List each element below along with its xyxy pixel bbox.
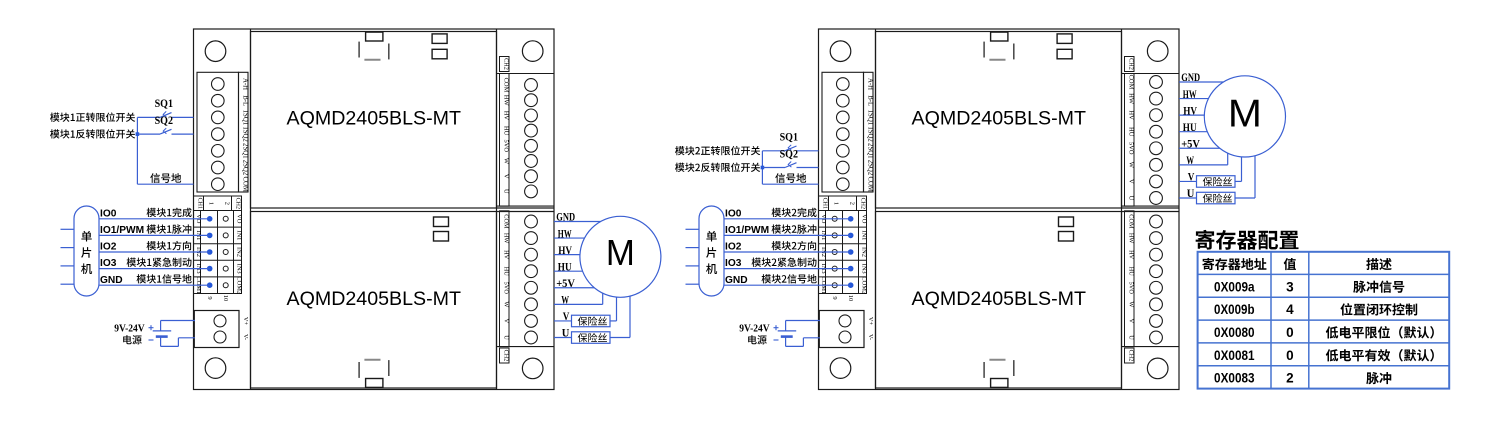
- svg-text:HV: HV: [1128, 250, 1135, 260]
- svg-text:U: U: [1128, 196, 1135, 201]
- svg-text:V: V: [503, 319, 510, 324]
- svg-text:2SQ2: 2SQ2: [241, 160, 248, 176]
- svg-text:0X009a: 0X009a: [1214, 279, 1255, 294]
- svg-text:HW: HW: [503, 233, 510, 244]
- svg-text:9: 9: [206, 296, 213, 299]
- svg-text:AQMD2405BLS-MT: AQMD2405BLS-MT: [912, 288, 1087, 310]
- svg-text:5VO: 5VO: [503, 282, 510, 295]
- svg-text:IN3: IN3: [236, 264, 243, 274]
- svg-text:CH1: CH1: [822, 198, 828, 209]
- svg-text:GND: GND: [100, 275, 123, 286]
- svg-text:HV: HV: [558, 245, 572, 257]
- svg-text:COM2: COM2: [236, 276, 243, 294]
- svg-text:1SQ2: 1SQ2: [866, 126, 873, 142]
- svg-text:4: 4: [1286, 302, 1294, 317]
- svg-text:U: U: [562, 328, 570, 340]
- svg-text:U: U: [503, 189, 510, 194]
- svg-text:HU: HU: [503, 126, 510, 136]
- svg-text:9V-24V: 9V-24V: [114, 324, 145, 335]
- svg-text:HW: HW: [558, 228, 572, 240]
- svg-text:5VO: 5VO: [503, 139, 510, 152]
- svg-text:0: 0: [1286, 325, 1294, 340]
- svg-text:IO1/PWM: IO1/PWM: [725, 225, 769, 236]
- svg-text:W: W: [1128, 301, 1135, 307]
- svg-text:V-: V-: [867, 334, 874, 340]
- svg-text:COM: COM: [241, 176, 248, 192]
- svg-text:A-H: A-H: [241, 78, 248, 90]
- svg-text:VO: VO: [236, 214, 243, 224]
- svg-text:2: 2: [223, 202, 230, 205]
- svg-text:AQMD2405BLS-MT: AQMD2405BLS-MT: [287, 108, 462, 130]
- svg-text:M: M: [606, 232, 635, 273]
- svg-text:IO0: IO0: [100, 208, 117, 219]
- svg-text:CH2: CH2: [503, 350, 510, 362]
- svg-text:2: 2: [848, 202, 855, 205]
- svg-text:CH1: CH1: [197, 198, 203, 209]
- svg-text:A-H: A-H: [866, 78, 873, 90]
- svg-text:10: 10: [222, 295, 229, 301]
- svg-text:10: 10: [847, 295, 854, 301]
- svg-text:IO3: IO3: [725, 258, 742, 269]
- svg-text:VO: VO: [861, 214, 868, 224]
- svg-text:0X009b: 0X009b: [1214, 302, 1255, 317]
- svg-text:HV: HV: [503, 250, 510, 260]
- svg-text:IN2: IN2: [861, 247, 868, 257]
- svg-text:V-: V-: [242, 334, 249, 340]
- svg-text:HW: HW: [503, 95, 510, 107]
- svg-text:CH2: CH2: [1128, 350, 1135, 362]
- svg-text:0X0081: 0X0081: [1214, 348, 1255, 363]
- svg-text:HV: HV: [1128, 110, 1135, 120]
- svg-text:HU: HU: [1183, 122, 1197, 134]
- svg-text:GND: GND: [1181, 72, 1200, 84]
- svg-text:CH2: CH2: [1128, 58, 1135, 70]
- svg-text:GND: GND: [725, 275, 748, 286]
- svg-text:2SQ1: 2SQ1: [241, 143, 248, 159]
- svg-text:HU: HU: [558, 261, 572, 273]
- svg-text:V: V: [1188, 172, 1195, 184]
- svg-text:U: U: [503, 335, 510, 340]
- svg-text:V: V: [563, 311, 570, 323]
- svg-text:IO2: IO2: [100, 242, 117, 253]
- svg-text:5VO: 5VO: [1128, 142, 1135, 155]
- svg-text:COM: COM: [866, 176, 873, 192]
- svg-text:HU: HU: [1128, 267, 1135, 277]
- svg-text:1SQ2: 1SQ2: [241, 126, 248, 142]
- svg-text:1SQ1: 1SQ1: [241, 110, 248, 126]
- svg-text:5VO: 5VO: [1128, 282, 1135, 295]
- svg-text:9V-24V: 9V-24V: [739, 324, 770, 335]
- svg-text:V: V: [1128, 319, 1135, 324]
- svg-text:GND: GND: [556, 212, 575, 224]
- svg-text:SQ2: SQ2: [155, 115, 174, 127]
- svg-text:IN3: IN3: [861, 264, 868, 274]
- svg-text:HW: HW: [1128, 93, 1135, 105]
- svg-text:1: 1: [207, 202, 214, 205]
- svg-text:9: 9: [831, 296, 838, 299]
- svg-text:W: W: [1186, 155, 1194, 167]
- svg-text:V+: V+: [242, 317, 249, 326]
- svg-text:CH2: CH2: [503, 58, 510, 70]
- svg-text:SQ2: SQ2: [780, 148, 799, 160]
- svg-text:CH2: CH2: [235, 198, 241, 209]
- svg-text:HU: HU: [503, 267, 510, 277]
- svg-text:COM2: COM2: [861, 276, 868, 294]
- svg-text:SQ1: SQ1: [780, 132, 799, 144]
- svg-text:M: M: [1228, 93, 1262, 136]
- svg-text:W: W: [503, 301, 510, 307]
- svg-text:V: V: [503, 174, 510, 179]
- svg-text:IO2: IO2: [725, 242, 742, 253]
- svg-text:IN1: IN1: [861, 230, 868, 240]
- svg-text:3: 3: [1286, 279, 1294, 294]
- svg-text:V: V: [1128, 179, 1135, 184]
- svg-text:B-L: B-L: [866, 95, 873, 106]
- svg-text:W: W: [1128, 162, 1135, 169]
- svg-text:CH2: CH2: [860, 198, 866, 209]
- svg-text:0: 0: [1286, 348, 1294, 363]
- svg-text:IO1/PWM: IO1/PWM: [100, 225, 144, 236]
- svg-text:2SQ2: 2SQ2: [866, 160, 873, 176]
- svg-text:AQMD2405BLS-MT: AQMD2405BLS-MT: [287, 288, 462, 310]
- svg-text:HW: HW: [1128, 233, 1135, 244]
- svg-text:SQ1: SQ1: [155, 98, 174, 110]
- svg-text:IN1: IN1: [236, 230, 243, 240]
- svg-text:+5V: +5V: [556, 278, 575, 290]
- svg-text:HV: HV: [503, 111, 510, 121]
- svg-text:COM: COM: [1128, 75, 1135, 90]
- svg-text:0X0083: 0X0083: [1214, 371, 1255, 386]
- svg-text:HU: HU: [1128, 127, 1135, 137]
- svg-text:1SQ1: 1SQ1: [866, 110, 873, 126]
- svg-text:V+: V+: [867, 317, 874, 326]
- svg-text:COM: COM: [503, 214, 510, 229]
- svg-text:U: U: [1128, 335, 1135, 340]
- svg-text:AQMD2405BLS-MT: AQMD2405BLS-MT: [912, 108, 1087, 130]
- svg-text:HV: HV: [1183, 105, 1197, 117]
- svg-text:B-L: B-L: [241, 95, 248, 106]
- svg-text:IN2: IN2: [236, 247, 243, 257]
- svg-text:U: U: [1187, 188, 1195, 200]
- svg-text:HW: HW: [1183, 89, 1197, 101]
- svg-text:COM: COM: [1128, 214, 1135, 229]
- svg-text:+5V: +5V: [1181, 138, 1200, 150]
- svg-text:IO0: IO0: [725, 208, 742, 219]
- svg-text:0X0080: 0X0080: [1214, 325, 1255, 340]
- svg-text:IO3: IO3: [100, 258, 117, 269]
- svg-text:2SQ1: 2SQ1: [866, 143, 873, 159]
- svg-text:2: 2: [1286, 371, 1294, 386]
- svg-text:1: 1: [832, 202, 839, 205]
- svg-text:W: W: [561, 295, 569, 307]
- svg-text:COM: COM: [503, 78, 510, 93]
- svg-text:W: W: [503, 158, 510, 165]
